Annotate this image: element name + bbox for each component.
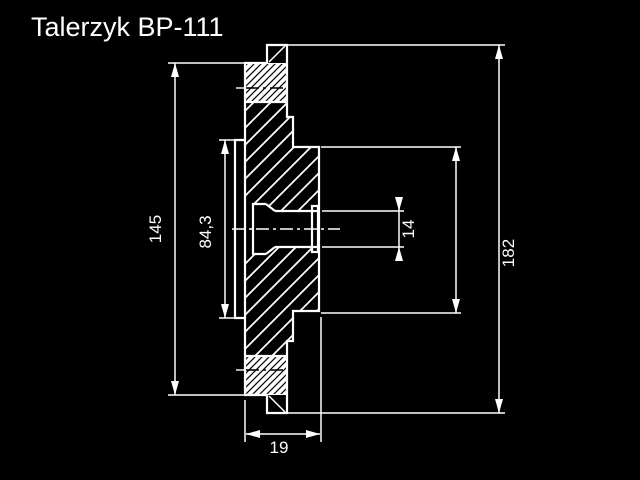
dimension-value-84-3: 84,3 xyxy=(196,215,215,248)
hatch-line xyxy=(0,0,430,480)
hatch-line xyxy=(0,0,390,480)
hatch-line xyxy=(0,0,339,480)
hatch-line xyxy=(522,0,640,480)
hatch-line xyxy=(517,0,640,480)
hatch-line xyxy=(454,0,640,480)
dimension-hub-diameter-unlabeled xyxy=(321,147,461,313)
hatch-line xyxy=(284,0,640,480)
hatch-line xyxy=(0,0,437,480)
hatch-line xyxy=(0,0,381,480)
hatch-line xyxy=(0,0,269,480)
hatch-line xyxy=(556,0,640,480)
hatch-line xyxy=(335,0,640,480)
hatch-line xyxy=(352,0,640,480)
hatch-line xyxy=(471,0,640,480)
hatch-line xyxy=(594,0,640,480)
drawing-page: Talerzyk BP-111 xyxy=(0,0,640,480)
flange-band-top xyxy=(245,63,287,102)
hatch-line xyxy=(0,0,381,480)
hatch-line xyxy=(0,0,465,480)
hatch-line xyxy=(545,0,640,480)
hatch-line xyxy=(419,0,640,480)
arrowhead-up xyxy=(221,140,229,154)
arrowhead-down xyxy=(452,299,460,313)
hatch-line xyxy=(0,0,220,480)
part-cross-section xyxy=(0,0,640,480)
hatch-line xyxy=(622,0,640,480)
hatch-line xyxy=(412,0,640,480)
dimension-value-19: 19 xyxy=(270,438,289,457)
hatch-line xyxy=(349,0,640,480)
hatch-line xyxy=(522,0,640,480)
hatch-line xyxy=(167,0,640,480)
hatch-line xyxy=(403,0,640,480)
hatch-line xyxy=(426,0,640,480)
hatch-line xyxy=(601,0,640,480)
hatch-line xyxy=(531,0,640,480)
hatch-line xyxy=(300,0,640,480)
hatch-line xyxy=(552,0,640,480)
hatch-line xyxy=(258,0,640,480)
hatch-line xyxy=(0,0,479,480)
dimension-value-182: 182 xyxy=(499,239,518,267)
hatch-line xyxy=(629,0,640,480)
hatch-line xyxy=(556,0,640,480)
hatch-line xyxy=(629,0,640,480)
hatch-line xyxy=(0,0,388,480)
technical-drawing-canvas: Talerzyk BP-111 xyxy=(0,0,640,480)
hatch-line xyxy=(539,0,640,480)
dimension-value-14: 14 xyxy=(399,220,418,239)
hatch-line xyxy=(0,0,254,480)
hatch-line xyxy=(118,0,598,480)
hatch-line xyxy=(160,0,640,480)
hatch-line xyxy=(160,0,640,480)
hatch-line xyxy=(0,0,475,480)
hatch-line xyxy=(0,0,269,480)
hatch-line xyxy=(559,0,640,480)
arrowhead-down xyxy=(395,197,403,211)
hatch-line xyxy=(301,0,640,480)
hatch-line xyxy=(505,0,640,480)
hatch-line xyxy=(0,0,220,480)
hatch-line xyxy=(0,0,444,480)
hatch-line xyxy=(590,0,640,480)
hatch-line xyxy=(0,0,339,480)
hatch-line xyxy=(573,0,640,480)
hatch-line xyxy=(545,0,640,480)
hatch-line xyxy=(301,0,640,480)
hatch-line xyxy=(608,0,640,480)
hatch-line xyxy=(573,0,640,480)
hatch-line xyxy=(284,0,640,480)
hatch-line xyxy=(0,0,227,480)
hatch-line xyxy=(566,0,640,480)
hatch-line xyxy=(0,0,475,480)
hatch-line xyxy=(461,0,640,480)
hatch-line xyxy=(0,0,255,480)
hatch-line xyxy=(524,0,640,480)
hatch-line xyxy=(146,0,626,480)
hatch-line xyxy=(335,0,640,480)
hatch-line xyxy=(440,0,640,480)
hatch-line xyxy=(0,0,437,480)
hatch-line xyxy=(237,0,640,480)
hatch-line xyxy=(461,0,640,480)
hatch-line xyxy=(0,0,441,480)
hatch-line xyxy=(454,0,640,480)
hatch-line xyxy=(440,0,640,480)
hatch-line xyxy=(0,0,356,480)
arrowhead-up xyxy=(495,45,503,59)
hatch-line xyxy=(69,0,549,480)
hatch-line xyxy=(433,0,640,480)
hatch-line xyxy=(524,0,640,480)
hatch-line xyxy=(607,0,640,480)
hatch-line xyxy=(0,0,339,480)
hatch-line xyxy=(403,0,640,480)
dimension-step-diameter: 84,3 xyxy=(196,140,235,318)
hatch-line xyxy=(300,0,640,480)
hatch-line xyxy=(0,0,360,480)
hatch-line xyxy=(454,0,640,480)
hatch-line xyxy=(471,0,640,480)
hatch-line xyxy=(267,0,640,480)
hatch-line xyxy=(250,0,640,480)
hatch-line xyxy=(454,0,640,480)
hatch-line xyxy=(342,0,640,480)
hatch-line xyxy=(0,0,458,480)
hatch-line xyxy=(607,0,640,480)
hatch-line xyxy=(244,0,640,480)
hatch-line xyxy=(286,0,640,480)
hatch-line xyxy=(62,0,542,480)
hatch-line xyxy=(237,0,640,480)
hatch-line xyxy=(63,0,543,480)
hatch-line xyxy=(114,0,594,480)
hatch-line xyxy=(0,0,271,480)
hatch-line xyxy=(0,0,458,480)
hatch-line xyxy=(437,0,640,480)
hatch-line xyxy=(419,0,640,480)
hatch-line xyxy=(587,0,640,480)
hatch-line xyxy=(111,0,591,480)
hatch-line xyxy=(601,0,640,480)
hatch-line xyxy=(321,0,640,480)
hatch-line xyxy=(293,0,640,480)
hatch-line xyxy=(636,0,640,480)
hatch-line xyxy=(279,0,640,480)
hatch-line xyxy=(335,0,640,480)
hatch-line xyxy=(590,0,640,480)
hatch-line xyxy=(608,0,640,480)
hatch-line xyxy=(258,0,640,480)
arrowhead-up xyxy=(171,63,179,77)
hatch-line xyxy=(63,0,543,480)
hatch-line xyxy=(0,0,390,480)
hatch-line xyxy=(636,0,640,480)
hatch-line xyxy=(0,0,465,480)
hatch-line xyxy=(503,0,640,480)
hatch-line xyxy=(559,0,640,480)
hatch-line xyxy=(349,0,640,480)
hatch-line xyxy=(468,0,640,480)
hatch-line xyxy=(517,0,640,480)
hatch-line xyxy=(251,0,640,480)
hatch-line xyxy=(0,0,262,480)
hatch-line xyxy=(165,0,640,480)
hatch-line xyxy=(580,0,640,480)
tab-hatch-top xyxy=(269,46,285,62)
hatch-line xyxy=(279,0,640,480)
hatch-line xyxy=(251,0,640,480)
tab-hatch-bottom xyxy=(269,396,285,412)
hatch-line xyxy=(321,0,640,480)
hatch-line xyxy=(538,0,640,480)
hatch-line xyxy=(352,0,640,480)
hatch-line xyxy=(230,0,640,480)
hatch-line xyxy=(62,0,542,480)
hatch-line xyxy=(505,0,640,480)
hatch-line xyxy=(615,0,640,480)
hatch-line xyxy=(539,0,640,480)
hatch-line xyxy=(335,0,640,480)
hatch-line xyxy=(342,0,640,480)
hatch-line xyxy=(566,0,640,480)
hatch-line xyxy=(0,0,227,480)
hatch-line xyxy=(594,0,640,480)
hatch-line xyxy=(398,0,640,480)
hatch-line xyxy=(307,0,640,480)
arrowhead-down xyxy=(171,381,179,395)
arrowhead-right xyxy=(306,430,320,438)
hatch-line xyxy=(314,0,640,480)
arrowhead-up xyxy=(452,147,460,161)
hatch-line xyxy=(447,0,640,480)
hatch-line xyxy=(307,0,640,480)
hatch-line xyxy=(328,0,640,480)
hatch-line xyxy=(615,0,640,480)
hatch-line xyxy=(148,0,628,480)
hatch-line xyxy=(0,0,220,480)
hatch-line xyxy=(552,0,640,480)
hatch-line xyxy=(437,0,640,480)
hatch-line xyxy=(412,0,640,480)
hatch-line xyxy=(0,0,255,480)
hatch-line xyxy=(0,0,339,480)
hatch-line xyxy=(111,0,591,480)
hatch-line xyxy=(503,0,640,480)
hatch-line xyxy=(447,0,640,480)
hatch-line xyxy=(250,0,640,480)
drawing-title: Talerzyk BP-111 xyxy=(31,12,224,42)
arrowhead-down xyxy=(221,304,229,318)
hatch-line xyxy=(55,0,535,480)
hatch-line xyxy=(314,0,640,480)
hatch-line xyxy=(622,0,640,480)
hatch-line xyxy=(55,0,535,480)
hatch-line xyxy=(0,0,283,480)
hatch-line xyxy=(146,0,626,480)
hatch-line xyxy=(0,0,441,480)
hatch-line xyxy=(69,0,549,480)
hatch-line xyxy=(0,0,458,480)
hatch-line xyxy=(0,0,254,480)
hatch-line xyxy=(0,0,444,480)
hatch-line xyxy=(538,0,640,480)
hatch-line xyxy=(0,0,360,480)
hatch-line xyxy=(420,0,640,480)
hatch-line xyxy=(420,0,640,480)
hatch-line xyxy=(318,0,640,480)
hatch-line xyxy=(328,0,640,480)
hatch-line xyxy=(426,0,640,480)
hatch-line xyxy=(233,0,640,480)
hatch-line xyxy=(398,0,640,480)
arrowhead-left xyxy=(246,430,260,438)
hatch-line xyxy=(580,0,640,480)
hatch-line xyxy=(573,0,640,480)
hatch-line xyxy=(114,0,594,480)
hatch-line xyxy=(0,0,262,480)
hatch-line xyxy=(230,0,640,480)
hatch-line xyxy=(0,0,283,480)
hatch-line xyxy=(0,0,356,480)
hatch-line xyxy=(531,0,640,480)
hatch-line xyxy=(624,0,640,480)
hatch-line xyxy=(118,0,598,480)
hatch-line xyxy=(468,0,640,480)
hatch-line xyxy=(587,0,640,480)
hatch-line xyxy=(0,0,220,480)
hatch-line xyxy=(0,0,271,480)
hatch-line xyxy=(405,0,640,480)
hatch-line xyxy=(233,0,640,480)
hatch-line xyxy=(433,0,640,480)
hatch-line xyxy=(0,0,458,480)
hatch-line xyxy=(148,0,628,480)
hatch-line xyxy=(318,0,640,480)
dimension-value-145: 145 xyxy=(146,215,165,243)
hatch-line xyxy=(244,0,640,480)
hatch-line xyxy=(0,0,388,480)
hatch-line xyxy=(510,0,640,480)
hatch-line xyxy=(405,0,640,480)
hatch-line xyxy=(293,0,640,480)
hatch-line xyxy=(165,0,640,480)
hatch-line xyxy=(267,0,640,480)
hatch-line xyxy=(286,0,640,480)
hatch-line xyxy=(0,0,479,480)
arrowhead-down xyxy=(495,399,503,413)
hatch-line xyxy=(167,0,640,480)
hatch-line xyxy=(510,0,640,480)
hatch-line xyxy=(0,0,430,480)
hatch-line xyxy=(573,0,640,480)
hatch-line xyxy=(624,0,640,480)
arrowhead-up xyxy=(395,247,403,261)
